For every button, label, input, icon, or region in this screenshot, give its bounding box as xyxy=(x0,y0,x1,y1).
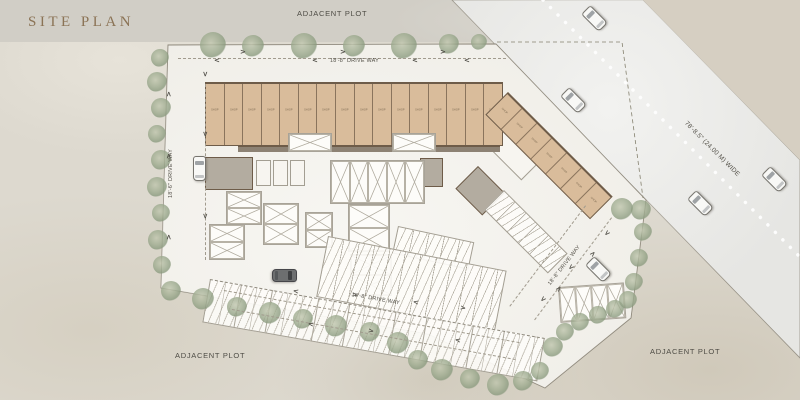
direction-arrow: > xyxy=(554,284,564,294)
page-title: SITE PLAN xyxy=(28,14,134,31)
direction-arrow: > xyxy=(367,327,374,336)
adjacent-plot-label-bottom-left: ADJACENT PLOT xyxy=(175,351,245,360)
adjacent-plot-label-bottom-right: ADJACENT PLOT xyxy=(650,347,720,356)
direction-arrow: > xyxy=(459,304,466,313)
direction-arrow: > xyxy=(464,56,470,64)
direction-arrow: > xyxy=(588,249,598,259)
direction-arrow: > xyxy=(538,294,548,304)
direction-arrow: > xyxy=(165,234,173,240)
direction-arrow: > xyxy=(201,213,209,219)
direction-arrow: > xyxy=(412,56,418,64)
direction-arrow: > xyxy=(440,48,446,56)
arrows-layer: >>>>>>>>>>>>>>>>>>>>>>>>> xyxy=(0,0,800,400)
direction-arrow: > xyxy=(165,91,173,97)
adjacent-plot-label-top: ADJACENT PLOT xyxy=(297,9,367,18)
site-plan-canvas: SHOPSHOPSHOPSHOPSHOPSHOPSHOPSHOPSHOPSHOP… xyxy=(0,0,800,400)
direction-arrow: > xyxy=(292,287,299,296)
direction-arrow: > xyxy=(340,48,346,56)
direction-arrow: > xyxy=(454,336,461,345)
direction-arrow: > xyxy=(602,228,612,238)
direction-arrow: > xyxy=(307,320,314,329)
direction-arrow: > xyxy=(201,131,209,137)
direction-arrow: > xyxy=(201,71,209,77)
direction-arrow: > xyxy=(412,298,419,307)
direction-arrow: > xyxy=(214,56,220,64)
direction-arrow: > xyxy=(240,48,246,56)
direction-arrow: > xyxy=(312,56,318,64)
driveway-label-top: 18'-8" DRIVE WAY xyxy=(330,58,379,64)
driveway-label-left: 18'-6" DRIVE WAY xyxy=(168,149,174,198)
